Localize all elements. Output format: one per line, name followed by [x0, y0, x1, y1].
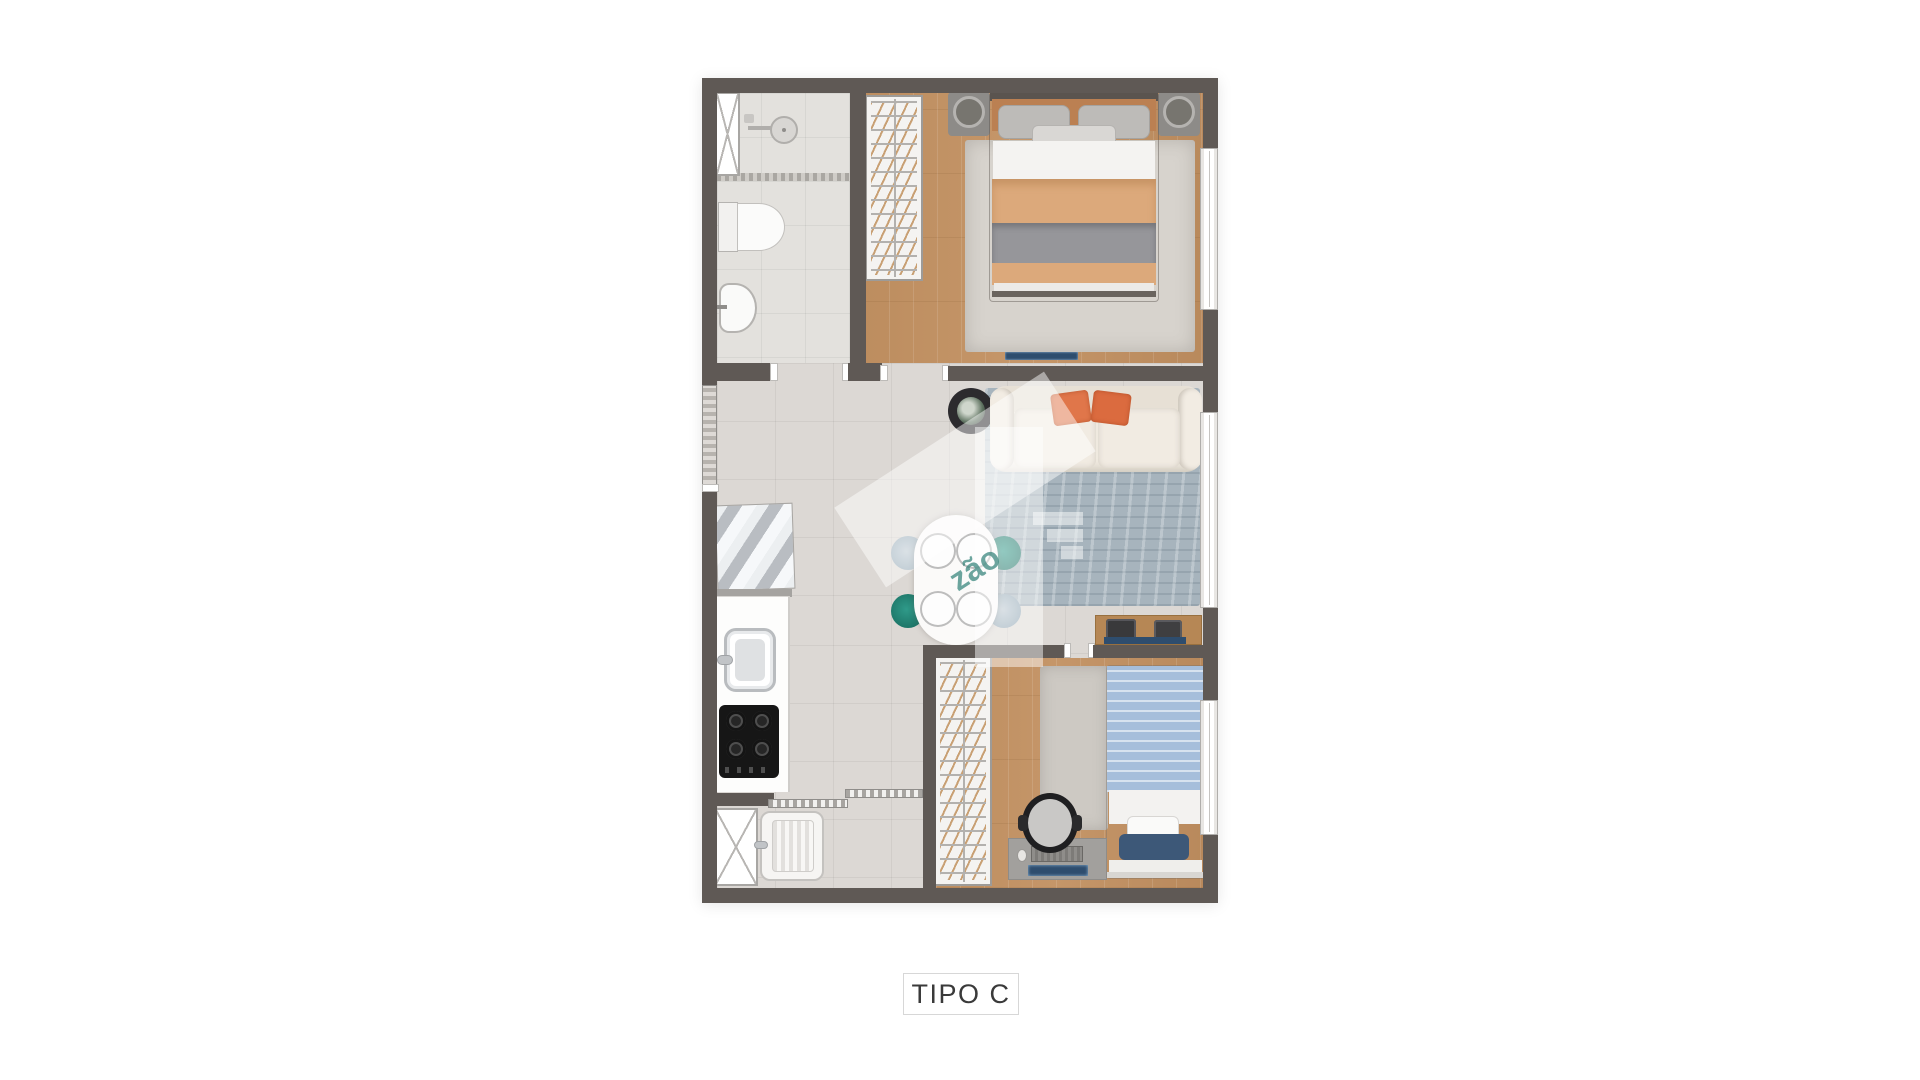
plant-side-table [948, 388, 994, 434]
wall-right-3 [1203, 608, 1218, 700]
wall-right-1 [1203, 78, 1218, 148]
place-setting-2 [956, 533, 992, 569]
entry-door [702, 385, 717, 489]
wall-bottom [702, 888, 1218, 903]
wall-living-top [948, 366, 1203, 381]
master-wardrobe [865, 95, 923, 281]
place-setting-4 [956, 591, 992, 627]
nightstand-right [1158, 92, 1200, 136]
sofa [990, 386, 1202, 472]
bed-throw [992, 223, 1156, 265]
laptop-accent [1028, 865, 1088, 876]
kids-door-jamb-left [1064, 643, 1071, 658]
laundry-faucet-icon [754, 841, 768, 849]
window-master-bedroom [1200, 148, 1218, 310]
toilet [717, 200, 787, 256]
dining-table [914, 515, 998, 645]
place-setting-1 [920, 533, 956, 569]
sink-faucet-icon [717, 655, 733, 665]
tile-transition-strip-high [845, 789, 923, 798]
tile-transition-strip-low [768, 799, 848, 808]
bathroom-door-jamb-left [770, 363, 778, 381]
wall-right-4 [1203, 835, 1218, 903]
chair-back-ring [1022, 793, 1078, 853]
place-setting-3 [920, 591, 956, 627]
burner-icon [726, 711, 746, 731]
burner-icon [752, 711, 772, 731]
media-sideboard [1095, 615, 1202, 645]
cushion-orange-1 [1050, 390, 1092, 427]
sideboard-front-accent [1104, 637, 1186, 644]
service-wall-stub [715, 793, 774, 806]
wall-hall-stub [848, 363, 882, 381]
desk-chair [1020, 793, 1082, 859]
shower-glass-panel [715, 92, 740, 176]
page: zão TIPO C [0, 0, 1920, 1080]
shower-head-center [782, 128, 786, 132]
kitchen-sink [724, 628, 776, 692]
chair-arm-right [1072, 815, 1082, 831]
shower-valve-icon [744, 114, 754, 123]
wall-kids-top-right [1093, 645, 1203, 658]
wall-bathroom-bottom [702, 363, 772, 381]
bed-sheet [993, 141, 1155, 181]
wall-right-2 [1203, 310, 1218, 412]
toilet-bowl [737, 203, 785, 251]
window-kids-bedroom [1200, 700, 1218, 835]
window-living [1200, 412, 1218, 608]
plant-icon [957, 397, 985, 425]
service-glass-panel [714, 808, 758, 886]
entry-door-jamb [702, 484, 719, 492]
double-bed [990, 93, 1158, 301]
kids-cushion-navy [1119, 834, 1189, 860]
wall-bathroom-right [850, 93, 866, 381]
kids-duvet [1107, 666, 1204, 792]
nightstand-tray-icon [1163, 96, 1195, 128]
washbasin [717, 283, 757, 335]
refrigerator [715, 503, 796, 592]
nightstand-tray-icon [953, 96, 985, 128]
cooktop [719, 705, 779, 778]
tv-soundbar [1005, 352, 1078, 360]
single-bed [1107, 666, 1204, 878]
kids-wardrobe [934, 656, 992, 886]
burner-icon [726, 739, 746, 759]
cooktop-knobs [725, 767, 773, 773]
plan-label-box: TIPO C [903, 973, 1019, 1015]
bed-duvet-foot [992, 263, 1156, 285]
laundry-tub [760, 811, 824, 881]
cushion-orange-2 [1090, 390, 1132, 426]
wall-top [702, 78, 1218, 93]
nightstand-left [948, 92, 990, 136]
wall-kids-left [923, 645, 936, 888]
plan-label: TIPO C [911, 979, 1010, 1010]
floorplan [702, 78, 1218, 903]
bedroom-door-jamb-left [880, 365, 888, 381]
sofa-arm-left [990, 388, 1014, 470]
wall-kids-top-left [923, 645, 1068, 658]
chair-arm-left [1018, 815, 1028, 831]
bed-footboard [992, 291, 1156, 297]
sofa-arm-right [1178, 388, 1202, 470]
sink-basin [735, 639, 765, 681]
toilet-tank [718, 202, 738, 252]
burner-icon [752, 739, 772, 759]
laundry-tub-ribs [772, 820, 814, 872]
shower-head-icon [770, 116, 798, 144]
kids-headboard [1107, 872, 1204, 878]
